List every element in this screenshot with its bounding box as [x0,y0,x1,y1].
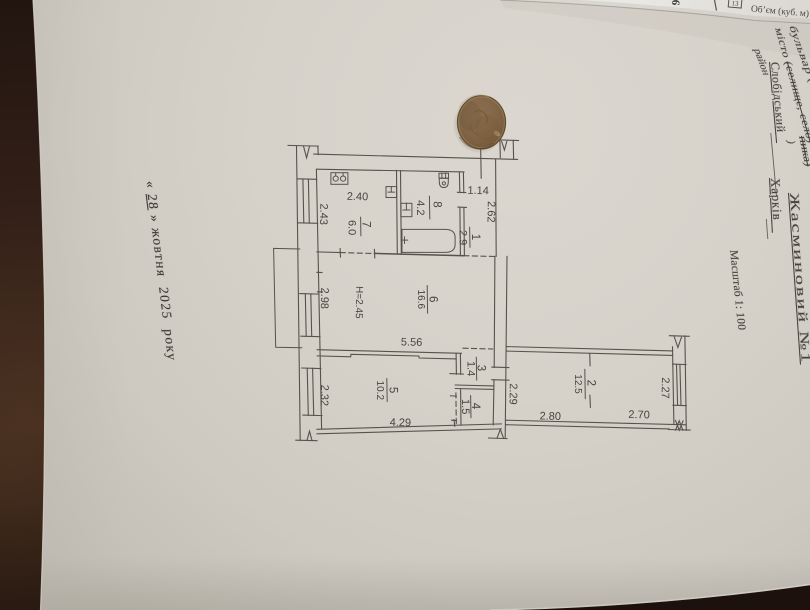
svg-text:1.5: 1.5 [459,399,471,414]
svg-text:2.43: 2.43 [317,203,329,225]
svg-text:6.0: 6.0 [346,220,358,235]
svg-text:4.29: 4.29 [390,417,412,430]
svg-text:10.2: 10.2 [374,381,385,401]
svg-text:13: 13 [731,0,739,8]
svg-text:1.4: 1.4 [465,361,477,376]
svg-text:2.27: 2.27 [659,377,671,399]
svg-text:2.62: 2.62 [485,201,497,223]
svg-text:2.32: 2.32 [318,385,330,407]
svg-text:2.70: 2.70 [628,409,650,422]
svg-text:5.56: 5.56 [401,336,423,349]
svg-text:2.9: 2.9 [457,230,469,245]
svg-text:6: 6 [427,296,439,302]
svg-text:1: 1 [469,234,481,240]
svg-text:12.5: 12.5 [572,374,583,394]
svg-text:H=2.45: H=2.45 [353,286,365,319]
svg-text:7: 7 [359,221,371,227]
svg-text:2.98: 2.98 [318,287,330,309]
svg-text:2.80: 2.80 [539,410,561,423]
svg-text:16.6: 16.6 [415,290,426,310]
svg-text:8: 8 [431,201,443,207]
svg-text:2.40: 2.40 [347,191,369,204]
svg-text:1.14: 1.14 [467,185,489,198]
svg-text:4.2: 4.2 [414,200,426,215]
svg-text:2: 2 [584,380,596,386]
svg-text:2.29: 2.29 [507,383,519,405]
svg-text:5: 5 [387,387,399,393]
